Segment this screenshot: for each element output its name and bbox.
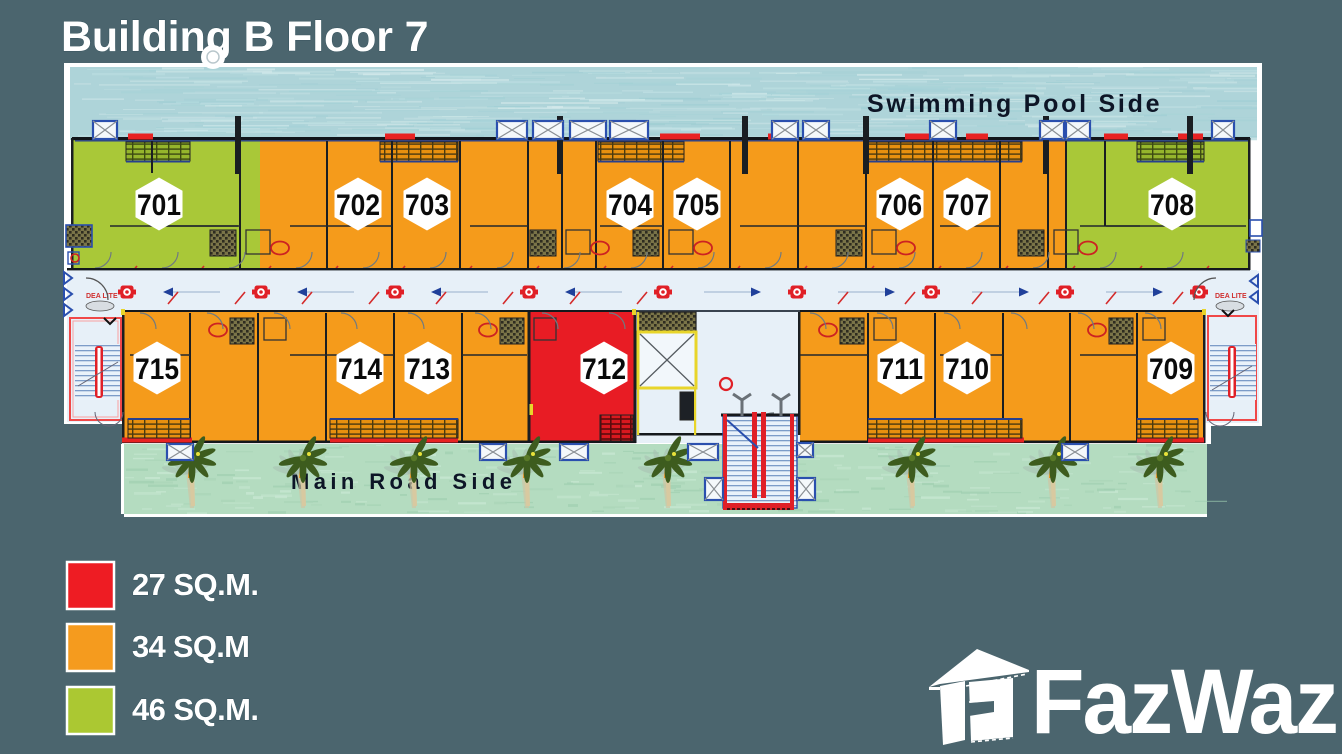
svg-text:714: 714 — [338, 353, 382, 386]
svg-text:705: 705 — [675, 189, 719, 222]
svg-text:701: 701 — [137, 189, 181, 222]
svg-text:706: 706 — [878, 189, 922, 222]
svg-text:34 SQ.M: 34 SQ.M — [132, 629, 250, 664]
svg-text:711: 711 — [879, 353, 923, 386]
svg-text:712: 712 — [582, 353, 626, 386]
svg-text:46 SQ.M.: 46 SQ.M. — [132, 692, 259, 727]
svg-text:703: 703 — [405, 189, 449, 222]
svg-text:709: 709 — [1149, 353, 1193, 386]
svg-text:Building B Floor 7: Building B Floor 7 — [61, 13, 428, 61]
svg-text:702: 702 — [336, 189, 380, 222]
svg-text:FazWaz: FazWaz — [1031, 651, 1337, 753]
svg-text:708: 708 — [1150, 189, 1194, 222]
svg-text:704: 704 — [608, 189, 652, 222]
svg-text:710: 710 — [945, 353, 989, 386]
svg-text:DEA LITE: DEA LITE — [1215, 293, 1247, 300]
svg-text:707: 707 — [945, 189, 989, 222]
svg-text:715: 715 — [135, 353, 179, 386]
svg-text:27 SQ.M.: 27 SQ.M. — [132, 567, 259, 602]
svg-text:713: 713 — [406, 353, 450, 386]
svg-text:DEA LITE: DEA LITE — [86, 293, 118, 300]
